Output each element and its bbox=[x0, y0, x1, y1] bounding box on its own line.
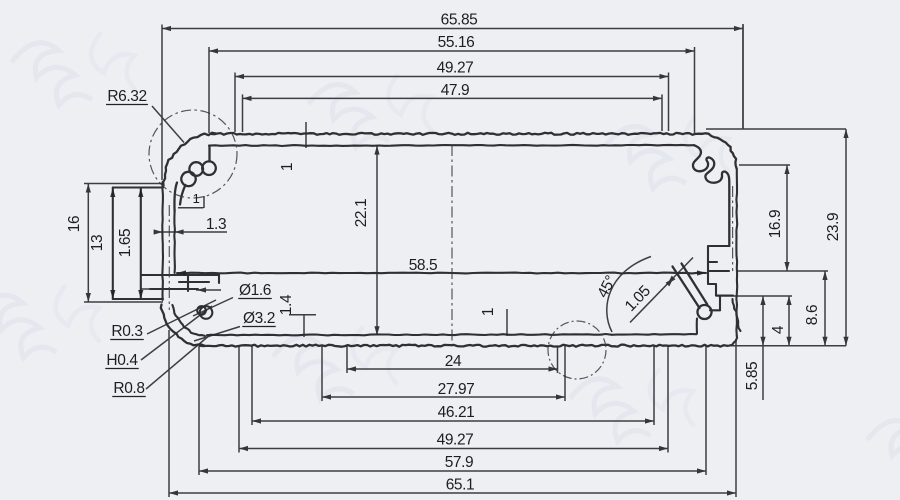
svg-text:8.6: 8.6 bbox=[804, 305, 821, 325]
svg-text:Ø1.6: Ø1.6 bbox=[239, 282, 271, 299]
svg-text:24: 24 bbox=[445, 353, 462, 370]
svg-text:27.97: 27.97 bbox=[438, 381, 475, 398]
svg-text:23.9: 23.9 bbox=[825, 213, 842, 242]
svg-text:22.1: 22.1 bbox=[353, 199, 370, 228]
svg-text:65.1: 65.1 bbox=[446, 477, 475, 494]
svg-text:R0.8: R0.8 bbox=[113, 380, 144, 397]
svg-text:Ø3.2: Ø3.2 bbox=[243, 310, 275, 327]
svg-text:1: 1 bbox=[279, 163, 296, 171]
svg-text:16.9: 16.9 bbox=[767, 210, 784, 239]
svg-text:4: 4 bbox=[770, 325, 787, 334]
svg-text:1.65: 1.65 bbox=[117, 229, 134, 258]
svg-text:5.85: 5.85 bbox=[744, 362, 761, 391]
svg-text:1: 1 bbox=[480, 308, 497, 316]
svg-text:46.21: 46.21 bbox=[438, 404, 475, 421]
svg-text:55.16: 55.16 bbox=[438, 34, 475, 51]
svg-text:1.3: 1.3 bbox=[206, 216, 226, 233]
svg-text:H0.4: H0.4 bbox=[106, 352, 138, 369]
svg-text:R0.3: R0.3 bbox=[111, 323, 142, 340]
svg-text:49.27: 49.27 bbox=[437, 432, 474, 449]
svg-text:49.27: 49.27 bbox=[437, 60, 474, 77]
svg-text:1: 1 bbox=[193, 191, 200, 206]
svg-text:13: 13 bbox=[89, 235, 106, 251]
svg-text:16: 16 bbox=[66, 216, 83, 232]
svg-text:65.85: 65.85 bbox=[441, 12, 478, 29]
svg-text:47.9: 47.9 bbox=[441, 82, 470, 99]
svg-text:R6.32: R6.32 bbox=[107, 88, 146, 105]
svg-text:57.9: 57.9 bbox=[445, 454, 474, 471]
svg-text:1.4: 1.4 bbox=[278, 294, 295, 315]
svg-text:58.5: 58.5 bbox=[409, 257, 438, 274]
